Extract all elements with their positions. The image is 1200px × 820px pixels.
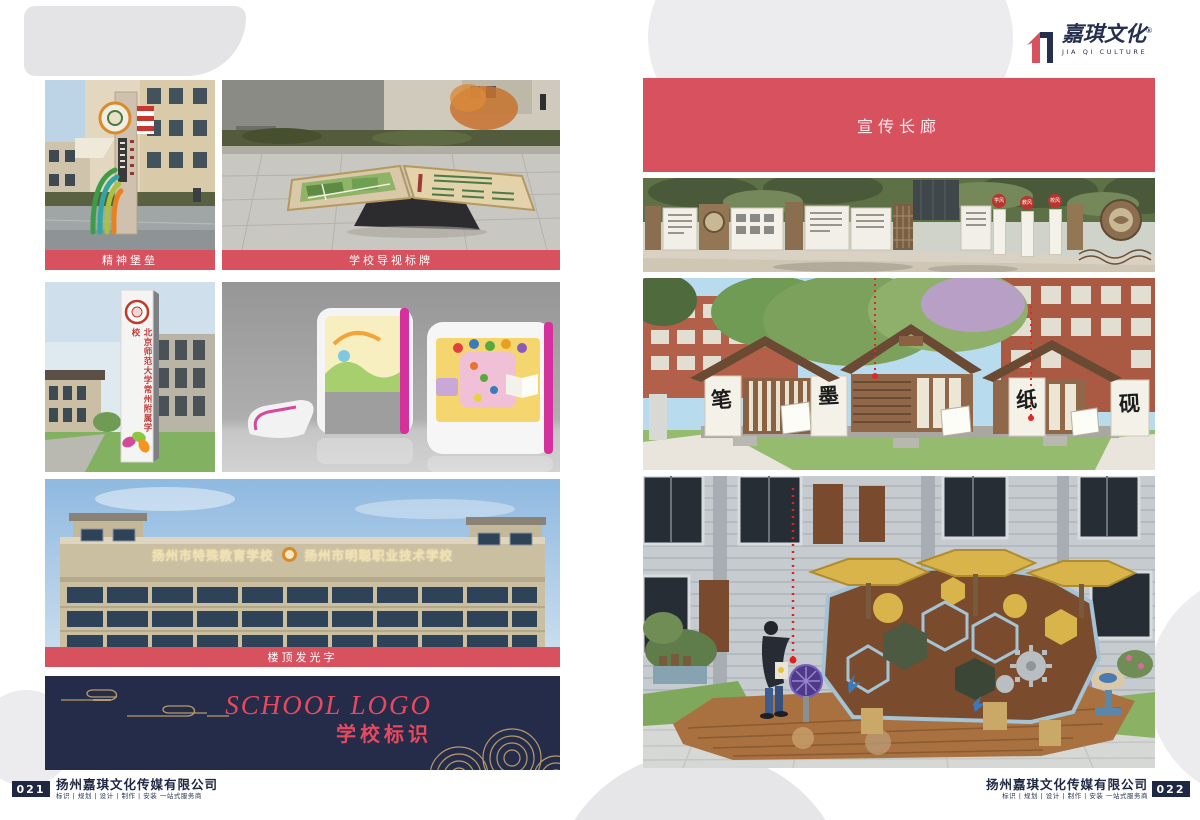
footer-tagline-left: 标识 | 规划 | 设计 | 制作 | 安装 一站式服务商 bbox=[56, 793, 202, 800]
school-emblem-icon bbox=[282, 547, 297, 562]
calligraphy-inkstone: 砚 bbox=[1118, 393, 1140, 415]
page-number-right: 022 bbox=[1152, 781, 1190, 797]
footer-tagline-right: 标识 | 规划 | 设计 | 制作 | 安装 一站式服务商 bbox=[1002, 793, 1148, 800]
page-number-left-value: 021 bbox=[17, 783, 46, 796]
wave-rings-icon bbox=[424, 706, 560, 770]
photo-roof-letters: 扬州市特殊教育学校 扬州市明聪职业技术学校 bbox=[45, 479, 560, 647]
school-logo-title-cn: 学校标识 bbox=[225, 724, 432, 744]
photo-culture-corridor: 学风 教风 校风 bbox=[643, 178, 1155, 272]
pylon-school-name: 北京师范大学常州附属学校 bbox=[129, 328, 153, 434]
caption-roof-letters: 楼顶发光字 bbox=[45, 647, 560, 667]
photo-honeycomb-wall bbox=[643, 476, 1155, 768]
brand-mark-icon bbox=[1025, 30, 1055, 68]
calligraphy-brush: 笔 bbox=[710, 389, 732, 411]
footer-company-right: 扬州嘉琪文化传媒有限公司 bbox=[986, 779, 1148, 792]
photo-spirit-fortress bbox=[45, 80, 215, 250]
school-logo-card: SCHOOL LOGO 学校标识 bbox=[45, 676, 560, 770]
corridor-banner-xiaofeng-label: 校风 bbox=[1048, 194, 1062, 208]
corridor-banner-xuefeng: 学风 bbox=[992, 194, 1006, 255]
caption-wayfinding: 学校导视标牌 bbox=[222, 250, 560, 270]
corridor-banner-xuefeng-label: 学风 bbox=[992, 194, 1006, 208]
caption-spirit-fortress-label: 精神堡垒 bbox=[102, 252, 158, 268]
caption-wayfinding-label: 学校导视标牌 bbox=[349, 252, 433, 268]
corridor-banner-jiaofeng-label: 教风 bbox=[1020, 196, 1034, 210]
honeycomb-illustration bbox=[643, 476, 1155, 768]
page-number-left: 021 bbox=[12, 781, 50, 797]
corridor-banner-strip bbox=[1021, 211, 1034, 257]
deco-circle-right bbox=[1148, 572, 1200, 802]
wooden-corridor-illustration bbox=[643, 278, 1155, 470]
rooftop-sign-right: 扬州市明聪职业技术学校 bbox=[305, 545, 454, 564]
rooftop-sign-left: 扬州市特殊教育学校 bbox=[152, 545, 274, 564]
brand-text: 嘉琪文化® JIA QI CULTURE bbox=[1062, 24, 1152, 80]
footer-company-left: 扬州嘉琪文化传媒有限公司 bbox=[56, 779, 218, 792]
corridor-banner-xiaofeng: 校风 bbox=[1048, 194, 1062, 255]
page-number-right-value: 022 bbox=[1157, 783, 1186, 796]
brochure-spread: 精神堡垒 bbox=[0, 0, 1200, 820]
school-logo-title-en: SCHOOL LOGO bbox=[225, 692, 432, 719]
corridor-illustration bbox=[643, 178, 1155, 272]
brand-logo: 嘉琪文化® JIA QI CULTURE bbox=[1025, 24, 1175, 80]
wayfinding-illustration bbox=[222, 80, 560, 250]
caption-roof-letters-label: 楼顶发光字 bbox=[268, 649, 338, 665]
spirit-fortress-illustration bbox=[45, 80, 215, 250]
deco-shape-top-left bbox=[24, 6, 246, 76]
photo-display-frames bbox=[222, 282, 560, 472]
rooftop-sign: 扬州市特殊教育学校 扬州市明聪职业技术学校 bbox=[45, 545, 560, 564]
photo-wayfinding-table bbox=[222, 80, 560, 250]
school-logo-titles: SCHOOL LOGO 学校标识 bbox=[225, 692, 432, 744]
calligraphy-paper: 纸 bbox=[1015, 389, 1037, 411]
brand-name-en: JIA QI CULTURE bbox=[1062, 48, 1152, 56]
corridor-banner-strip bbox=[993, 209, 1006, 255]
section-banner: 宣传长廊 bbox=[643, 78, 1155, 172]
corridor-banner-strip bbox=[1049, 209, 1062, 255]
section-banner-title: 宣传长廊 bbox=[857, 113, 941, 137]
corridor-banner-jiaofeng: 教风 bbox=[1020, 196, 1034, 257]
calligraphy-ink: 墨 bbox=[817, 385, 839, 407]
caption-spirit-fortress: 精神堡垒 bbox=[45, 250, 215, 270]
display-frames-illustration bbox=[222, 282, 560, 472]
brand-reg-mark: ® bbox=[1146, 26, 1152, 35]
photo-pylon-sign: 北京师范大学常州附属学校 bbox=[45, 282, 215, 472]
photo-wooden-corridor: 笔 墨 纸 砚 bbox=[643, 278, 1155, 470]
brand-name-cn: 嘉琪文化 bbox=[1062, 22, 1146, 46]
